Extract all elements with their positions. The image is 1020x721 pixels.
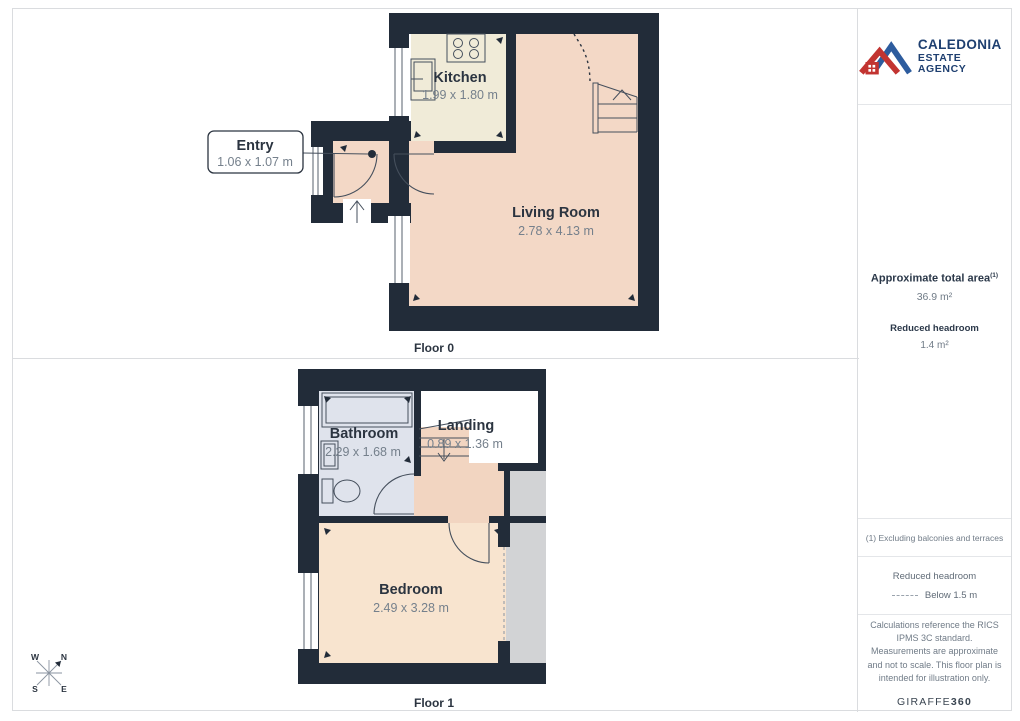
- compass-east: E: [61, 684, 67, 694]
- landing-dims: 0.89 x 1.36 m: [427, 437, 503, 451]
- wall-kitchen-living: [506, 34, 516, 143]
- wall-bath-bedroom: [298, 516, 448, 523]
- disclaimer-section: Calculations reference the RICS IPMS 3C …: [858, 614, 1011, 712]
- wall-right-upper: [538, 369, 546, 471]
- compass: W N S E: [31, 652, 67, 694]
- wall-bed-door-stub: [489, 516, 546, 523]
- compass-south: S: [32, 684, 38, 694]
- compass-north: N: [61, 652, 67, 662]
- floor1-plan: Bathroom 2.29 x 1.68 m Landing 0.89 x 1.…: [13, 359, 859, 712]
- reduced-headroom-title: Reduced headroom: [890, 323, 979, 334]
- plans-column: Kitchen 1.99 x 1.80 m Living Room 2.78 x…: [13, 9, 859, 712]
- reduced-headroom-top: [510, 471, 546, 516]
- bathroom-label: Bathroom: [330, 426, 398, 442]
- wall-right: [638, 13, 659, 331]
- living-room-label: Living Room: [512, 205, 600, 221]
- kitchen-label: Kitchen: [433, 70, 486, 86]
- bedroom-dims: 2.49 x 3.28 m: [373, 601, 449, 615]
- legend-item: Below 1.5 m: [925, 590, 977, 601]
- floor0-label: Floor 0: [414, 341, 454, 355]
- wall-bottom: [298, 663, 546, 684]
- agency-logo: CALEDONIA ESTATE AGENCY: [858, 9, 1011, 104]
- wall-stub-lower: [498, 641, 510, 663]
- legend-title: Reduced headroom: [893, 571, 976, 582]
- wall-hall-gray-side: [504, 471, 510, 519]
- window-bedroom: [297, 573, 318, 649]
- wall-bottom: [389, 306, 659, 331]
- wall-kitchen-bottom: [434, 141, 516, 153]
- compass-west: W: [31, 652, 40, 662]
- total-area-value: 36.9 m²: [917, 291, 953, 303]
- agency-name-line1: CALEDONIA: [918, 38, 1011, 52]
- legend: Reduced headroom Below 1.5 m: [858, 556, 1011, 614]
- entry-label: Entry: [236, 138, 273, 154]
- floor0-plan: Kitchen 1.99 x 1.80 m Living Room 2.78 x…: [13, 9, 859, 359]
- living-room-dims: 2.78 x 4.13 m: [518, 224, 594, 238]
- giraffe360-brand: GIRAFFE360: [897, 696, 972, 708]
- agency-name-line2: ESTATE AGENCY: [918, 53, 1011, 75]
- floorplan-sheet: Kitchen 1.99 x 1.80 m Living Room 2.78 x…: [12, 8, 1012, 711]
- footnote-marker: (1): [990, 272, 998, 279]
- window-living-upper: [388, 48, 410, 116]
- agency-logo-icon: [858, 34, 913, 80]
- wall-stub-upper: [498, 523, 510, 547]
- wall-bath-landing: [414, 391, 421, 476]
- disclaimer-text: Calculations reference the RICS IPMS 3C …: [867, 619, 1002, 684]
- bedroom-label: Bedroom: [379, 582, 443, 598]
- hall-floor: [414, 463, 504, 519]
- landing-label: Landing: [438, 418, 494, 434]
- wall-top: [298, 369, 546, 391]
- reduced-headroom-value: 1.4 m²: [920, 340, 948, 351]
- window-bathroom: [297, 406, 318, 474]
- total-area-title: Approximate total area(1): [871, 272, 998, 285]
- wall-hall-gray-top: [498, 463, 546, 471]
- kitchen-dims: 1.99 x 1.80 m: [422, 88, 498, 102]
- entry-dims: 1.06 x 1.07 m: [217, 155, 293, 169]
- floor1-label: Floor 1: [414, 696, 454, 710]
- info-sidebar: CALEDONIA ESTATE AGENCY Approximate tota…: [857, 9, 1011, 712]
- floor1-panel: Bathroom 2.29 x 1.68 m Landing 0.89 x 1.…: [13, 359, 859, 712]
- footnote: (1) Excluding balconies and terraces: [858, 518, 1011, 556]
- floor0-panel: Kitchen 1.99 x 1.80 m Living Room 2.78 x…: [13, 9, 859, 359]
- wall-top: [389, 13, 659, 34]
- reduced-headroom-side: [506, 523, 546, 663]
- window-entry: [309, 147, 323, 195]
- dashed-line-icon: [892, 595, 918, 596]
- window-living-lower: [388, 216, 410, 283]
- bathroom-dims: 2.29 x 1.68 m: [325, 445, 401, 459]
- area-summary: Approximate total area(1) 36.9 m² Reduce…: [858, 104, 1011, 518]
